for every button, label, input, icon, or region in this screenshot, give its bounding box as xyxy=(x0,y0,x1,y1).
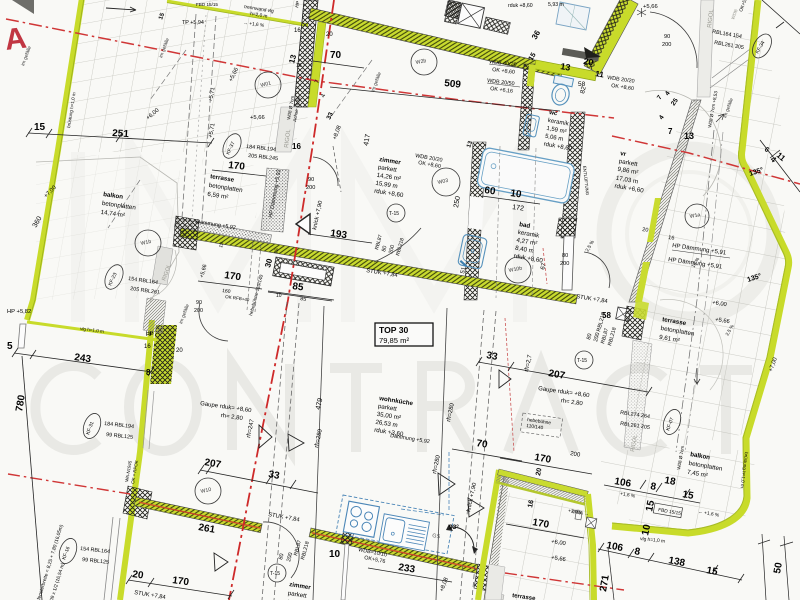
svg-text:+5,66: +5,66 xyxy=(250,115,265,121)
svg-text:90: 90 xyxy=(196,300,202,306)
svg-text:T-15: T-15 xyxy=(389,211,399,217)
svg-text:79,85 m²: 79,85 m² xyxy=(379,336,409,345)
svg-text:20: 20 xyxy=(176,348,183,354)
svg-text:5,93 m: 5,93 m xyxy=(548,2,564,8)
svg-text:60: 60 xyxy=(484,185,497,198)
svg-text:16: 16 xyxy=(296,63,302,69)
svg-text:70: 70 xyxy=(476,438,489,451)
svg-text:200: 200 xyxy=(662,42,671,48)
svg-text:TOP 30: TOP 30 xyxy=(379,325,409,335)
svg-text:+5,66: +5,66 xyxy=(643,4,658,10)
svg-text:13: 13 xyxy=(684,131,694,141)
svg-text:HP +5,82: HP +5,82 xyxy=(7,309,31,315)
svg-text:200: 200 xyxy=(306,185,315,191)
svg-text:90: 90 xyxy=(308,177,314,183)
svg-text:90: 90 xyxy=(664,34,670,40)
svg-text:20: 20 xyxy=(642,227,649,234)
svg-text:10: 10 xyxy=(510,188,523,201)
svg-text:8: 8 xyxy=(146,368,151,377)
svg-text:15: 15 xyxy=(34,122,46,133)
svg-text:16: 16 xyxy=(668,235,675,242)
svg-text:509: 509 xyxy=(444,78,462,91)
svg-text:20: 20 xyxy=(132,569,145,582)
svg-text:70: 70 xyxy=(330,50,342,61)
svg-text:200: 200 xyxy=(194,308,203,314)
svg-text:16: 16 xyxy=(294,28,301,34)
svg-text:HP: HP xyxy=(146,331,154,337)
svg-text:16: 16 xyxy=(292,142,301,151)
svg-text:20: 20 xyxy=(583,56,595,68)
svg-text:TP +5,94: TP +5,94 xyxy=(182,20,204,26)
svg-text:85: 85 xyxy=(292,281,305,294)
svg-text:A: A xyxy=(3,22,29,57)
svg-text:7: 7 xyxy=(668,127,673,136)
svg-text:T-15: T-15 xyxy=(270,571,280,577)
svg-text:10: 10 xyxy=(276,293,282,299)
svg-text:T-15: T-15 xyxy=(577,358,587,364)
svg-text:200: 200 xyxy=(560,261,569,267)
svg-text:5: 5 xyxy=(7,341,13,352)
svg-text:20: 20 xyxy=(326,32,333,38)
svg-text:93°: 93° xyxy=(449,523,459,531)
svg-text:10: 10 xyxy=(329,549,341,560)
svg-text:170: 170 xyxy=(228,160,246,173)
svg-text:rduk +8,60: rduk +8,60 xyxy=(508,3,533,9)
svg-text:16: 16 xyxy=(144,344,151,350)
svg-text:80: 80 xyxy=(562,253,568,259)
svg-text:FBD 15/15: FBD 15/15 xyxy=(196,2,218,7)
svg-text:13: 13 xyxy=(560,61,572,73)
svg-text:85: 85 xyxy=(300,296,307,303)
svg-text:251: 251 xyxy=(112,128,130,140)
